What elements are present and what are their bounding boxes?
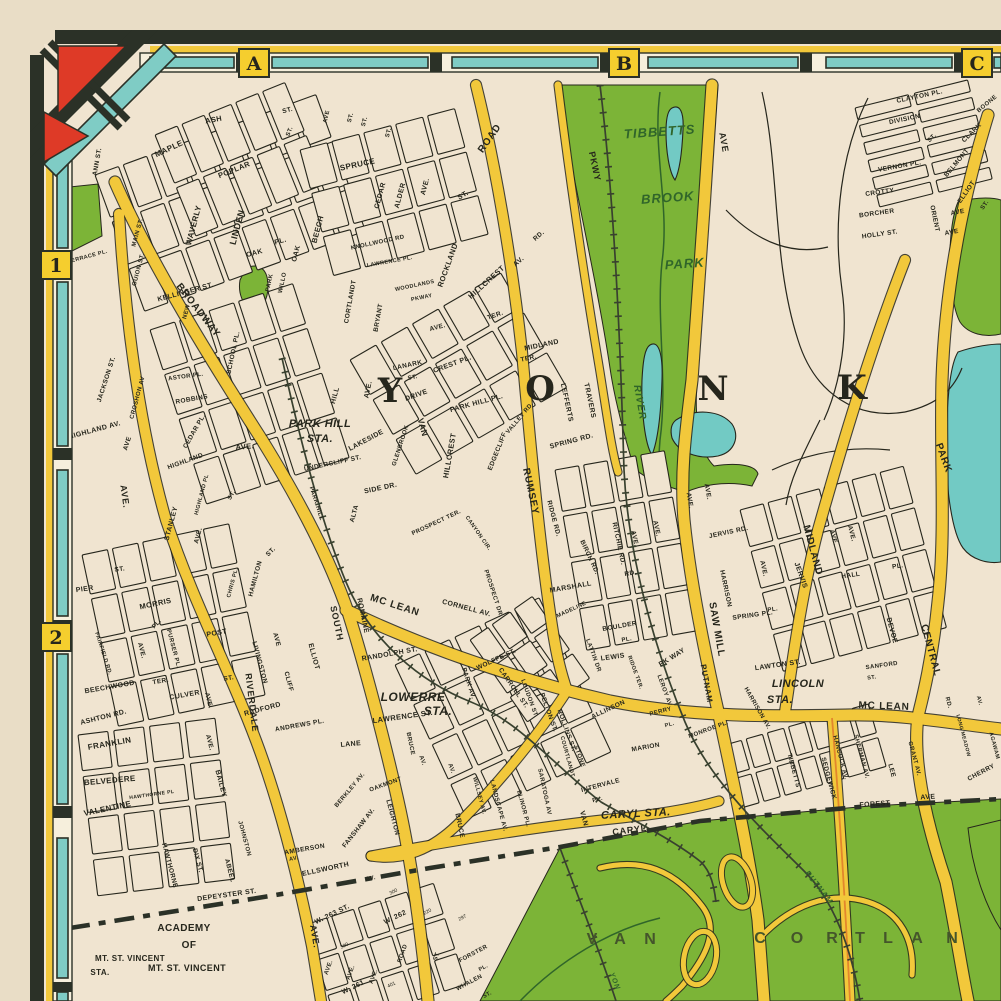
vintage-street-map: BROADWAYAVE.RIVERDALEAVE.SOUTHMC LEANMC … — [0, 0, 1001, 1001]
map-label-cityg: V — [587, 931, 598, 948]
svg-text:B: B — [616, 53, 632, 75]
map-label-st: MT. ST. VINCENT — [148, 963, 226, 973]
map-label-cityg: N — [946, 930, 958, 947]
map-label-st: ST. — [867, 674, 877, 681]
map-label-sta: LOWERRE — [381, 690, 446, 704]
map-label-st: MT. ST. VINCENT — [95, 954, 165, 963]
map-label-cityg: A — [911, 930, 923, 947]
map-label-cityg: T — [855, 930, 865, 947]
map-label-st: AVE. — [235, 441, 254, 452]
map-label-cityg: R — [826, 930, 838, 947]
map-label-rd: MC LEAN — [858, 700, 910, 713]
svg-text:A: A — [246, 53, 262, 75]
border-left-bar — [30, 55, 44, 1001]
map-label-st: ST. — [114, 565, 125, 573]
map-label-cityg: N — [644, 931, 656, 948]
map-label-cityg: A — [614, 931, 626, 948]
map-label-cityg: L — [883, 930, 893, 947]
map-label-st: STA. — [90, 968, 109, 977]
svg-text:C: C — [969, 53, 984, 75]
map-label-city: N — [697, 369, 728, 409]
svg-text:2: 2 — [49, 627, 62, 649]
map-label-sta: LINCOLN — [772, 678, 825, 690]
map-label-sta: STA. — [307, 433, 333, 445]
map-label-sta: PARK HILL — [289, 418, 351, 430]
map-label-sta: STA. — [767, 694, 793, 706]
map-label-city: K — [837, 368, 868, 408]
map-label-st: AVE — [920, 793, 936, 801]
map-label-st: OF — [182, 940, 197, 951]
border-top-bar — [55, 30, 1001, 44]
map-canvas: BROADWAYAVE.RIVERDALEAVE.SOUTHMC LEANMC … — [0, 0, 1001, 1001]
map-label-park: PARK — [664, 255, 705, 273]
map-print: BROADWAYAVE.RIVERDALEAVE.SOUTHMC LEANMC … — [0, 0, 1001, 1001]
map-label-st: ACADEMY — [157, 923, 210, 934]
map-label-cityg: C — [754, 930, 766, 947]
svg-text:1: 1 — [49, 255, 62, 277]
map-label-cityg: O — [791, 930, 803, 947]
map-label-city: Y — [377, 371, 403, 411]
